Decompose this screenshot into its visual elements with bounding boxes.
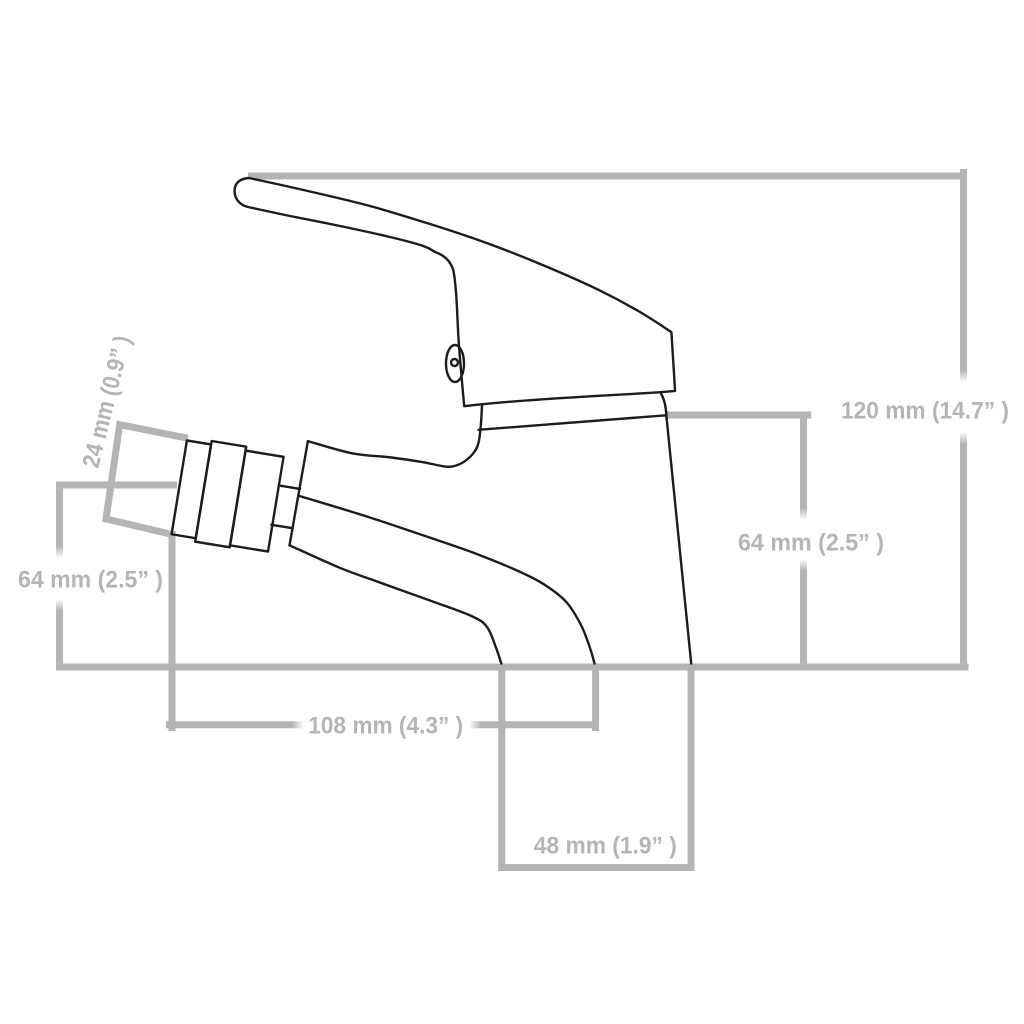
svg-text:64 mm (2.5” ): 64 mm (2.5” ) bbox=[18, 567, 163, 594]
svg-text:108 mm (4.3” ): 108 mm (4.3” ) bbox=[308, 713, 463, 740]
svg-text:120 mm (14.7” ): 120 mm (14.7” ) bbox=[841, 398, 1009, 425]
svg-text:64 mm (2.5” ): 64 mm (2.5” ) bbox=[738, 530, 884, 557]
svg-text:48 mm (1.9” ): 48 mm (1.9” ) bbox=[534, 833, 677, 860]
